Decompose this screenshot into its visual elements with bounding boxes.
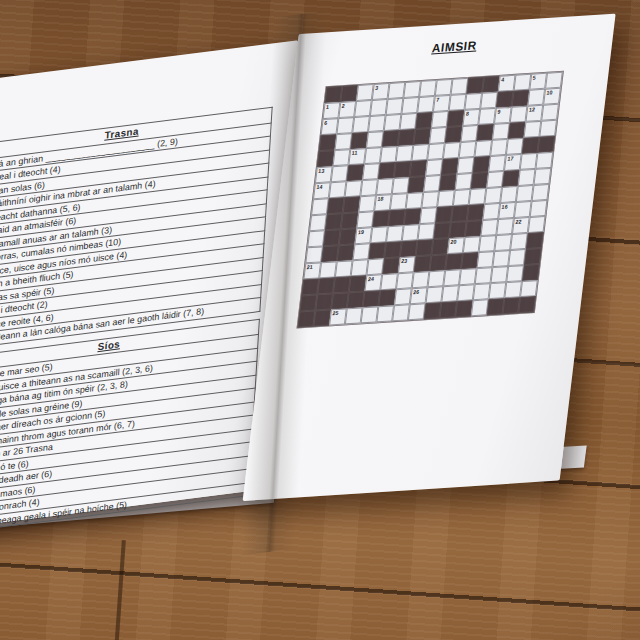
cell-number: 10: [546, 89, 553, 96]
open-booklet: Trasna 1Tá an ghrian ___________________…: [0, 0, 640, 628]
open-cell: [530, 200, 548, 217]
block-cell: [526, 232, 544, 249]
open-cell: [541, 104, 559, 121]
cell-number: 25: [332, 310, 339, 317]
open-cell: [535, 152, 553, 169]
cell-number: 3: [375, 85, 379, 92]
photo-scene: Trasna 1Tá an ghrian ___________________…: [0, 0, 640, 640]
cell-number: 21: [306, 264, 313, 271]
clue-lists: Trasna 1Tá an ghrian ___________________…: [0, 107, 273, 534]
crossword-title-label: AIMSIR: [431, 38, 478, 55]
cell-number: 8: [465, 111, 469, 118]
cell-number: 9: [497, 109, 501, 116]
cell-number: 13: [318, 168, 325, 175]
cell-number: 19: [357, 229, 364, 236]
cell-number: 18: [377, 196, 384, 203]
cell-number: 5: [532, 74, 536, 81]
crossword-grid: 3451271068912111317141816192220212324262…: [297, 71, 564, 329]
cell-number: 24: [367, 276, 374, 283]
across-clue-rows: 1Tá an ghrian ______________________ (2,…: [0, 123, 271, 349]
cell-number: 11: [351, 150, 358, 157]
cell-number: 23: [401, 258, 408, 265]
down-header-label: Síos: [97, 338, 120, 352]
cell-number: 2: [341, 103, 345, 110]
cell-number: 17: [507, 155, 514, 162]
block-cell: [522, 264, 540, 281]
block-cell: [518, 296, 536, 313]
cell-number: 16: [501, 203, 508, 210]
open-cell: [532, 184, 550, 201]
open-cell: [528, 216, 546, 233]
across-clues-table: Trasna 1Tá an ghrian ___________________…: [0, 107, 273, 350]
cell-number: 4: [501, 76, 505, 83]
crossword-title: AIMSIR: [295, 30, 614, 65]
across-header-label: Trasna: [104, 126, 139, 141]
open-cell: 10: [543, 88, 561, 105]
cell-number: 12: [528, 106, 535, 113]
block-cell: [537, 136, 555, 153]
cell-number: 26: [413, 289, 420, 296]
open-cell: [539, 120, 557, 137]
cell-number: 1: [326, 104, 330, 111]
cell-number: 14: [316, 184, 323, 191]
open-cell: [545, 72, 563, 89]
cell-number: 20: [450, 239, 457, 246]
cell-number: 22: [515, 219, 522, 226]
right-page: AIMSIR 345127106891211131714181619222021…: [243, 14, 616, 501]
open-cell: [534, 168, 552, 185]
cell-number: 7: [436, 97, 440, 104]
cell-number: 6: [324, 120, 328, 127]
open-cell: [520, 280, 538, 297]
block-cell: [524, 248, 542, 265]
